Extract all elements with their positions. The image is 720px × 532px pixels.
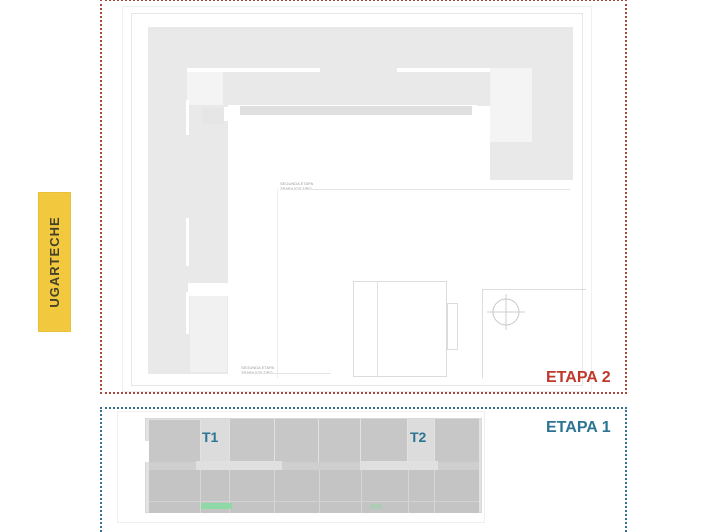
street-label-ugarteche: UGARTECHE [38, 192, 71, 332]
plan-seam-line [434, 470, 435, 513]
plan-seam-line [274, 470, 275, 513]
etapa1-corridor-light [196, 461, 282, 470]
etapa1-building-block [361, 419, 407, 462]
plan-terrace-line [482, 289, 483, 378]
plan-patio-step [447, 303, 458, 350]
plan-courtyard [490, 68, 532, 142]
etapa1-building-block [319, 419, 360, 462]
etapa1-building-block [149, 420, 200, 462]
plan-courtyard [187, 72, 223, 105]
plan-courtyard [190, 296, 227, 372]
plan-seam-line [408, 470, 409, 513]
tower2-label: T2 [410, 429, 426, 445]
green-accent-strip [201, 503, 232, 509]
plan-seam-line [319, 470, 320, 513]
plan-notch [224, 107, 240, 121]
etapa1-building-block [275, 419, 318, 462]
etapa1-building-lower-slab [149, 470, 479, 513]
compass-icon [487, 294, 525, 332]
plan-wall-line [186, 100, 189, 135]
plan-balcony-strip [240, 106, 472, 115]
plan-leader-line [241, 373, 331, 374]
plan-patio-outline [353, 281, 447, 377]
plan-notch [202, 108, 224, 124]
green-accent-strip [370, 504, 382, 509]
plan-leader-line [280, 189, 570, 190]
street-label-text: UGARTECHE [38, 192, 71, 332]
etapa2-stage-label: ETAPA 2 [546, 369, 611, 387]
plan-corridor-line [397, 68, 490, 72]
etapa1-corridor-light [360, 461, 438, 470]
plan-terrace-line [482, 289, 586, 290]
tower1-label: T1 [202, 429, 218, 445]
site-plan-canvas: UGARTECHE SEGUNDA ETAPA TRABAJOS TIPO SE… [0, 0, 720, 532]
plan-wall-line [188, 283, 228, 296]
plan-leader-line [277, 189, 278, 378]
etapa1-stage-label: ETAPA 1 [546, 419, 611, 437]
plan-notch [477, 106, 490, 180]
plan-wall-line [186, 218, 189, 266]
plan-patio-divider [377, 281, 378, 377]
plan-wall-line [186, 292, 189, 334]
etapa1-building-block [435, 419, 479, 462]
etapa1-building-block [230, 419, 274, 462]
plan-seam-line [361, 470, 362, 513]
plan-seam-line [149, 501, 479, 502]
